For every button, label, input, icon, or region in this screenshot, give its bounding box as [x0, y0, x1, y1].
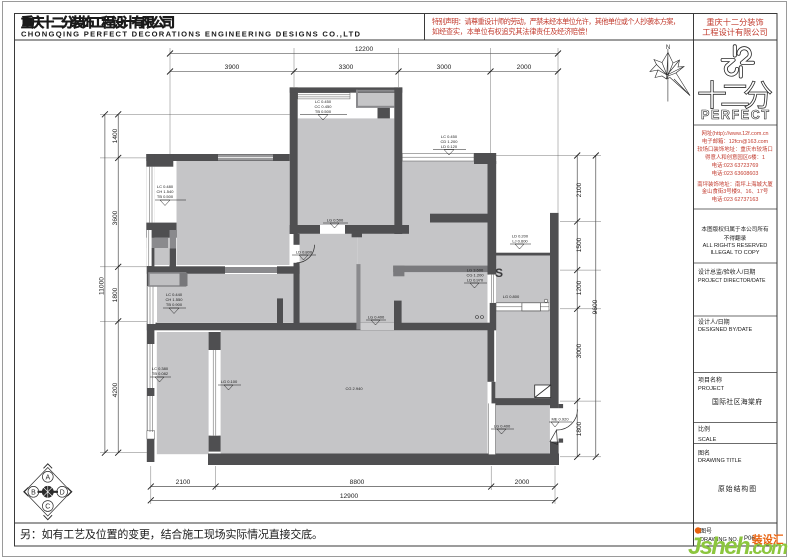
- svg-text:12200: 12200: [355, 46, 374, 53]
- svg-text:3300: 3300: [339, 64, 354, 71]
- svg-text:TB 0.500: TB 0.500: [157, 194, 174, 199]
- svg-text:金山食街3号楼9、16、17号: 金山食街3号楼9、16、17号: [702, 187, 769, 195]
- svg-text:3000: 3000: [576, 343, 583, 358]
- svg-text:LG 0.500: LG 0.500: [327, 218, 344, 223]
- svg-text:1800: 1800: [112, 287, 119, 302]
- svg-text:设计人/日期: 设计人/日期: [698, 318, 730, 326]
- svg-text:LG 0.400: LG 0.400: [368, 315, 385, 320]
- svg-text:LD 0.970: LD 0.970: [467, 278, 484, 283]
- svg-text:不得翻录: 不得翻录: [724, 234, 747, 242]
- svg-text:3900: 3900: [225, 64, 240, 71]
- svg-text:11000: 11000: [99, 277, 106, 295]
- svg-text:LJ 0.600: LJ 0.600: [512, 239, 528, 244]
- svg-text:PROJECT DIRECTOR/DATE: PROJECT DIRECTOR/DATE: [698, 278, 766, 284]
- svg-text:S: S: [495, 266, 503, 280]
- svg-text:12900: 12900: [340, 493, 359, 500]
- svg-text:LD 0.120: LD 0.120: [441, 144, 458, 149]
- svg-text:电话:023 62737163: 电话:023 62737163: [712, 195, 759, 203]
- svg-text:SCALE: SCALE: [698, 437, 717, 443]
- svg-text:LG 0.400: LG 0.400: [494, 424, 511, 429]
- svg-text:1200: 1200: [576, 280, 583, 295]
- svg-text:电话:023 63608603: 电话:023 63608603: [712, 169, 759, 177]
- svg-text:TB 0.082: TB 0.082: [152, 371, 169, 376]
- svg-text:N: N: [666, 45, 670, 51]
- svg-text:特别声明：请尊重设计师的劳动，严禁未经本单位允许，其他单位或: 特别声明：请尊重设计师的劳动，严禁未经本单位允许，其他单位或个人抄袭本方案，: [432, 17, 680, 26]
- svg-text:PERFECT: PERFECT: [701, 108, 769, 122]
- svg-text:电子邮箱：12fcn@163.com: 电子邮箱：12fcn@163.com: [702, 137, 769, 145]
- svg-text:南坪装饰地址：南坪上海城大厦: 南坪装饰地址：南坪上海城大厦: [697, 180, 773, 188]
- svg-text:本图版权归属于本公司所有: 本图版权归属于本公司所有: [701, 225, 769, 233]
- svg-text:1400: 1400: [112, 128, 119, 143]
- svg-text:PROJECT: PROJECT: [698, 386, 725, 392]
- svg-text:图名: 图名: [698, 449, 710, 457]
- svg-text:DESIGNED BY/DATE: DESIGNED BY/DATE: [698, 327, 753, 333]
- svg-text:9600: 9600: [592, 299, 599, 314]
- svg-text:3000: 3000: [437, 64, 452, 71]
- svg-text:TB 0.900: TB 0.900: [166, 302, 183, 307]
- svg-text:重庆十二分装饰: 重庆十二分装饰: [706, 17, 763, 27]
- svg-text:DRAWING TITLE: DRAWING TITLE: [698, 458, 742, 464]
- svg-text:工程设计有限公司: 工程设计有限公司: [702, 27, 768, 37]
- svg-text:1800: 1800: [576, 421, 583, 436]
- svg-text:2000: 2000: [517, 64, 532, 71]
- svg-text:网址(http)://www.12f.com.cn: 网址(http)://www.12f.com.cn: [701, 129, 768, 137]
- svg-text:C: C: [45, 504, 50, 511]
- svg-text:比例: 比例: [698, 425, 710, 433]
- svg-text:3600: 3600: [112, 210, 119, 225]
- svg-text:ALL RIGHTS RESERVED: ALL RIGHTS RESERVED: [703, 243, 768, 249]
- svg-text:项目名称: 项目名称: [698, 376, 722, 384]
- svg-text:LD 0.800: LD 0.800: [296, 250, 313, 255]
- svg-text:D: D: [60, 489, 65, 496]
- svg-text:2100: 2100: [176, 479, 191, 486]
- svg-text:LG 0.800: LG 0.800: [503, 294, 520, 299]
- svg-text:原始结构图: 原始结构图: [718, 484, 756, 493]
- svg-text:2000: 2000: [515, 479, 530, 486]
- svg-text:B: B: [31, 489, 36, 496]
- svg-text:ILLEGAL TO COPY: ILLEGAL TO COPY: [710, 250, 759, 256]
- svg-text:TB 0.500: TB 0.500: [315, 109, 332, 114]
- svg-text:2100: 2100: [576, 182, 583, 197]
- svg-text:如经查实，本单位有权追究其法律责任及经济赔偿！: 如经查实，本单位有权追究其法律责任及经济赔偿！: [432, 27, 592, 36]
- svg-text:LG 0.100: LG 0.100: [221, 379, 238, 384]
- svg-text:设计总监/验收人/日期: 设计总监/验收人/日期: [698, 268, 755, 276]
- svg-text:1500: 1500: [576, 237, 583, 252]
- svg-text:国际社区海棠府: 国际社区海棠府: [712, 397, 762, 406]
- svg-text:得意人和创意园区6楼：1: 得意人和创意园区6楼：1: [705, 153, 765, 161]
- svg-text:ME 0.920: ME 0.920: [551, 417, 569, 422]
- svg-text:较场口装饰地址：重庆市较场口: 较场口装饰地址：重庆市较场口: [697, 145, 772, 153]
- svg-text:电话:023 63723769: 电话:023 63723769: [712, 161, 759, 169]
- svg-text:重庆十二分装饰工程设计有限公司: 重庆十二分装饰工程设计有限公司: [21, 15, 175, 30]
- svg-text:A: A: [45, 474, 50, 481]
- svg-text:4200: 4200: [112, 382, 119, 397]
- svg-text:另：如有工艺及位置的变更，结合施工现场实际情况直接交底。: 另：如有工艺及位置的变更，结合施工现场实际情况直接交底。: [20, 527, 323, 541]
- svg-text:CG 2.940: CG 2.940: [345, 386, 363, 391]
- svg-text:8800: 8800: [350, 479, 365, 486]
- svg-text:装设汇: 装设汇: [751, 533, 784, 546]
